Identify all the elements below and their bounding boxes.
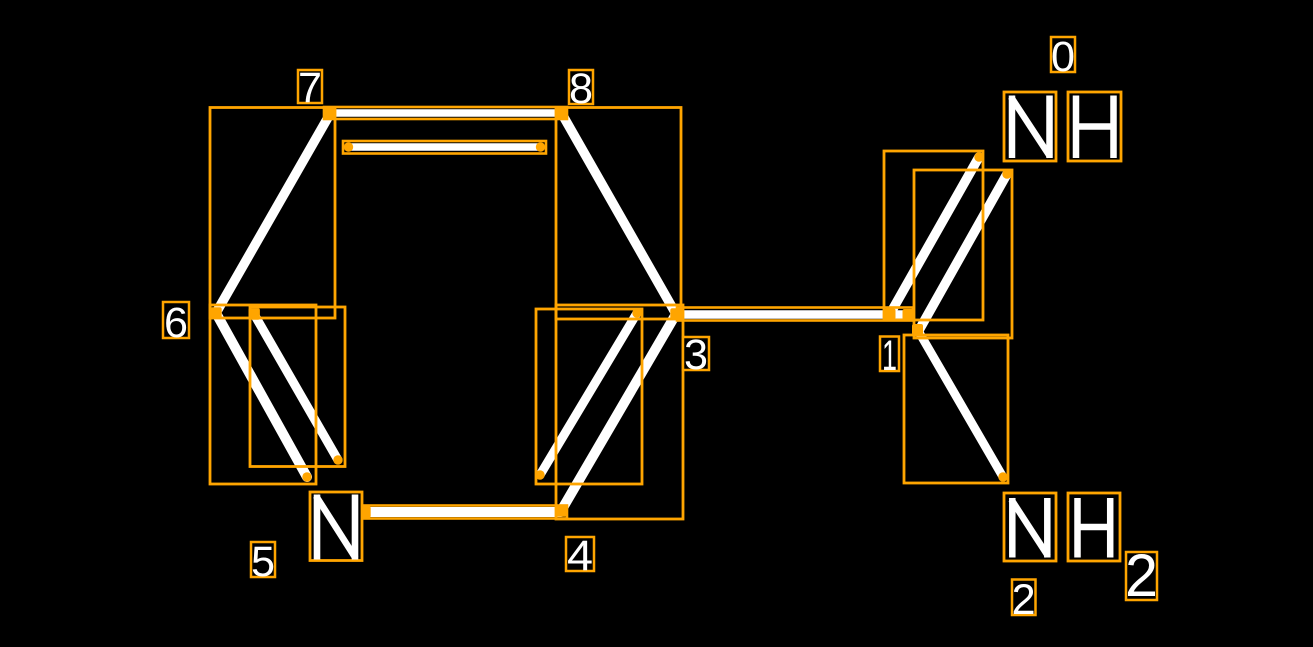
- svg-text:4: 4: [567, 532, 593, 580]
- svg-text:3: 3: [684, 331, 708, 379]
- svg-text:2: 2: [1125, 542, 1158, 609]
- svg-text:5: 5: [251, 538, 275, 586]
- svg-text:1: 1: [882, 332, 897, 380]
- svg-text:8: 8: [569, 65, 593, 113]
- svg-text:2: 2: [1012, 576, 1036, 624]
- svg-text:6: 6: [164, 299, 188, 347]
- svg-text:7: 7: [298, 64, 322, 112]
- svg-text:0: 0: [1051, 33, 1075, 81]
